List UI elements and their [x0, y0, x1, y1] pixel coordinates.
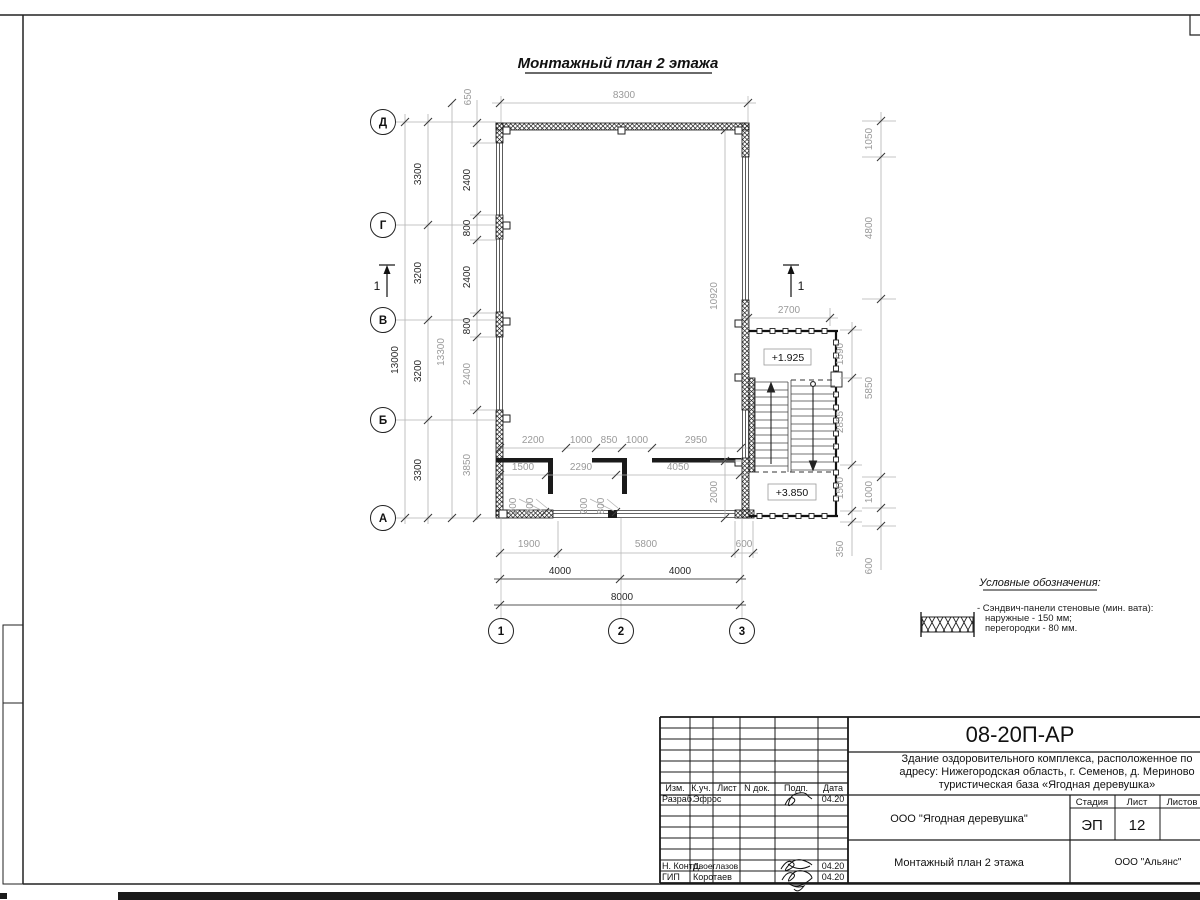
axis-label: 3 [739, 626, 745, 638]
legend-hatch-symbol [921, 612, 974, 637]
plan-title: Монтажный план 2 этажа [518, 55, 719, 72]
tb-plan-name: Монтажный план 2 этажа [894, 857, 1025, 869]
dim-label: 600 [864, 557, 875, 574]
dim-label: 800 [525, 497, 536, 514]
dim-label: 4050 [667, 462, 690, 473]
elevation-mark-landing: +1.925 [764, 349, 811, 365]
project-desc: туристическая база «Ягодная деревушка» [939, 779, 1156, 791]
tb-role: Разраб. [662, 794, 694, 804]
dim-label: 850 [601, 435, 618, 446]
dim-label: 2400 [462, 168, 473, 191]
dimension-labels: 8300 650 13000 13300 3300 3200 3200 3300… [390, 88, 875, 603]
doc-code: 08-20П-АР [966, 722, 1075, 747]
drawing-canvas: Монтажный план 2 этажа [0, 0, 1200, 900]
tb-col: Дата [823, 783, 843, 793]
axis-label: В [379, 315, 387, 327]
axis-label: 1 [498, 626, 505, 638]
titleblock: 08-20П-АР Здание оздоровительного компле… [660, 717, 1200, 891]
dim-label: 800 [596, 497, 607, 514]
dim-label: 650 [463, 88, 474, 105]
dim-label: 5800 [635, 539, 658, 550]
legend-title: Условные обозначения: [978, 577, 1100, 589]
dim-label: 1900 [518, 539, 541, 550]
dim-label: 3200 [413, 261, 424, 284]
project-desc: адресу: Нижегородская область, г. Семено… [899, 766, 1194, 778]
tb-stage-label: Лист [1127, 797, 1148, 808]
tb-name: Двоеглазов [693, 861, 739, 871]
dim-label: 1000 [570, 435, 593, 446]
tb-stage-label: Стадия [1076, 797, 1108, 808]
tb-date: 04.20 [822, 861, 845, 871]
dim-label: 3200 [413, 359, 424, 382]
dim-label: 800 [462, 219, 473, 236]
tb-sheet-no: 12 [1129, 817, 1146, 834]
project-desc: Здание оздоровительного комплекса, распо… [902, 753, 1193, 765]
dim-label: 1590 [835, 342, 846, 365]
tb-name: Эфрос [693, 794, 722, 804]
section-mark-right: 1 [783, 265, 805, 297]
tb-stage-value: ЭП [1081, 817, 1103, 834]
dim-label: 2290 [570, 462, 593, 473]
tb-col: N док. [744, 783, 770, 793]
elevation-mark-upper: +3.850 [768, 484, 816, 500]
signature [781, 793, 812, 891]
axis-label: Г [380, 220, 387, 232]
tb-company: ООО "Альянс" [1115, 857, 1182, 868]
dim-label: 2950 [685, 435, 708, 446]
dim-label: 3300 [413, 162, 424, 185]
dim-label: 1500 [512, 462, 535, 473]
dim-label: 2400 [462, 362, 473, 385]
tb-org: ООО "Ягодная деревушка" [890, 813, 1028, 825]
dim-label: 2200 [522, 435, 545, 446]
dim-label: 800 [462, 317, 473, 334]
axis-label: Б [379, 415, 387, 427]
dim-label: 200 [579, 497, 590, 514]
dim-label: 200 [508, 497, 519, 514]
tb-name: Коротаев [693, 872, 732, 882]
dim-label: 1000 [626, 435, 649, 446]
section-label: 1 [798, 279, 805, 293]
tb-col: Изм. [665, 783, 684, 793]
legend-line: перегородки - 80 мм. [985, 623, 1077, 634]
dim-label: 4000 [669, 566, 692, 577]
section-label: 1 [374, 279, 381, 293]
axis-lines [395, 96, 748, 619]
dim-label: 5850 [864, 376, 875, 399]
dim-label: 2000 [709, 480, 720, 503]
dim-label: 13000 [390, 346, 401, 374]
legend: Условные обозначения: - Сэндвич-панели с… [921, 577, 1153, 637]
axis-label: 2 [618, 626, 624, 638]
tb-date: 04.20 [822, 872, 845, 882]
dim-label: 1050 [864, 127, 875, 150]
dim-label: 2855 [835, 410, 846, 433]
axis-label: Д [379, 117, 387, 129]
dim-label: 8300 [613, 90, 636, 101]
dimension-ticks [401, 99, 885, 609]
dim-label: 600 [736, 539, 753, 550]
dim-label: 3300 [413, 458, 424, 481]
section-mark-left: 1 [374, 265, 395, 297]
tb-col: Лист [717, 783, 737, 793]
dim-label: 1000 [864, 480, 875, 503]
svg-text:+3.850: +3.850 [776, 487, 809, 499]
dim-label: 2400 [462, 265, 473, 288]
drawing-sheet: Монтажный план 2 этажа [0, 0, 1200, 900]
dim-label: 350 [835, 540, 846, 557]
dim-label: 4800 [864, 216, 875, 239]
dim-label: 10920 [709, 282, 720, 310]
dim-label: 2700 [778, 305, 801, 316]
tb-col: К.уч. [691, 783, 710, 793]
dim-label: 3850 [462, 453, 473, 476]
stair-flights [754, 380, 835, 472]
sheet-bottom-bar [0, 892, 1200, 900]
tb-role: ГИП [662, 872, 680, 882]
tb-col: Подп. [784, 783, 808, 793]
dim-label: 8000 [611, 592, 634, 603]
dim-label: 13300 [436, 338, 447, 366]
axis-label: А [379, 513, 387, 525]
svg-text:+1.925: +1.925 [772, 352, 805, 364]
dim-label: 4000 [549, 566, 572, 577]
tb-stage-label: Листов [1167, 797, 1198, 808]
tb-date: 04.20 [822, 794, 845, 804]
dim-label: 1500 [835, 476, 846, 499]
